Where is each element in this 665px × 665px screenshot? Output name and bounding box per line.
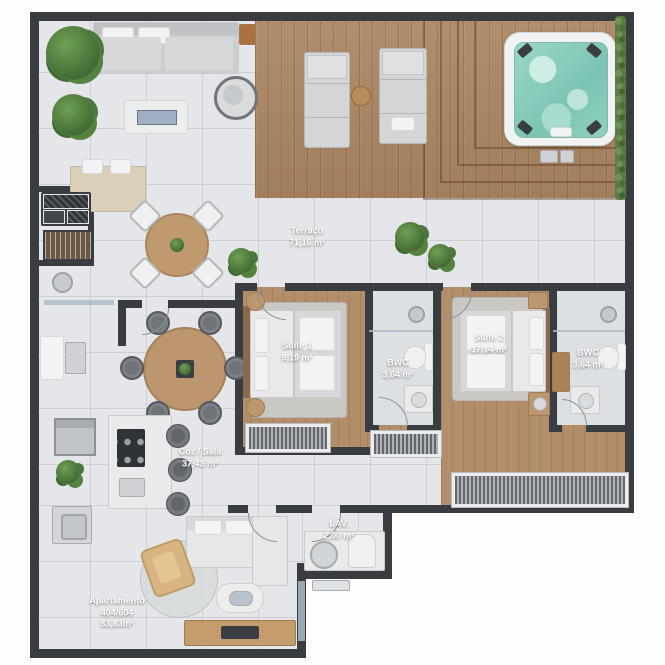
- bwc1-sink: [411, 392, 427, 408]
- label-lav-name: LAV.: [323, 518, 354, 530]
- label-suite1-area: 9,19 m²: [281, 352, 312, 364]
- label-bwc2: BWC 3,64 m²: [572, 347, 603, 370]
- label-coz-name: Coz / Sala: [179, 446, 222, 458]
- wall-lav-top: [340, 505, 391, 513]
- label-bwc1-area: 3,64 m²: [382, 369, 413, 381]
- corner-plant-small: [52, 94, 94, 136]
- label-terraco-area: 71,16 m²: [289, 237, 325, 249]
- ottoman-tray: [229, 591, 253, 606]
- coffee-table-tray: [137, 110, 177, 125]
- cabinet-drawer: [43, 210, 65, 224]
- wall-kitchen: [168, 300, 243, 308]
- suite1-headboard: [243, 306, 250, 398]
- label-apartamento: Apartamento 404/604 83,83m²: [89, 595, 145, 630]
- label-coz-area: 37,43 m²: [179, 458, 222, 470]
- console-item: [221, 626, 259, 639]
- wall-bwc2-bottom: [549, 425, 562, 432]
- label-suite2-area: 17,14 m²: [471, 344, 507, 356]
- nightstand-lamp: [533, 397, 547, 411]
- chair-cushion: [223, 85, 243, 105]
- wall-suite1-bwc1: [365, 283, 373, 429]
- suite2-nightstand: [528, 292, 548, 309]
- wall-bottom-left: [30, 649, 306, 658]
- bwc1-vanity: [404, 385, 433, 413]
- suite2-dresser: [552, 352, 570, 392]
- bwc2-shower-glass: [553, 330, 625, 332]
- washer-door: [61, 514, 87, 540]
- deck-floor-hatch: [560, 150, 574, 163]
- label-suite2-name: Suíte 2: [471, 332, 507, 344]
- deck-side-table: [351, 86, 371, 106]
- sofa-seat: [165, 37, 233, 70]
- wall-top: [30, 12, 634, 21]
- coffee-table: [124, 100, 188, 134]
- tv-console: [184, 620, 296, 646]
- sun-lounger: [304, 52, 350, 148]
- hall-closet: [371, 431, 441, 457]
- label-terraco-name: Terraço: [289, 225, 325, 237]
- lounger-towel: [391, 117, 415, 131]
- bar-stool: [166, 424, 190, 448]
- wall-bedrooms-top: [285, 283, 443, 291]
- wall-office-top: [228, 505, 248, 513]
- terrace-hedge: [615, 16, 626, 200]
- stove: [117, 429, 145, 467]
- wall-left: [30, 12, 39, 658]
- washer: [52, 506, 92, 544]
- wall-hall-suite2: [433, 283, 441, 433]
- jacuzzi-control: [550, 127, 572, 137]
- cabinet-drawer: [43, 194, 89, 209]
- wall-bwc2-bottom: [586, 425, 625, 432]
- terrace-sofa: [93, 22, 239, 74]
- bed-pillow: [529, 317, 544, 350]
- label-suite1-name: Suíte 1: [281, 340, 312, 352]
- label-bwc1-name: BWC: [382, 357, 413, 369]
- floor-plan: Terraço 71,16 m² Suíte 1 9,19 m² BWC 3,6…: [0, 0, 665, 665]
- terrace-sink: [52, 272, 73, 293]
- label-apartamento-area: 83,83m²: [89, 619, 145, 631]
- bed-pillow: [254, 356, 269, 391]
- corner-plant-large: [46, 26, 100, 80]
- terrace-potted-plant: [228, 248, 254, 274]
- cabinet-drawer: [67, 210, 89, 224]
- kitchen-counter: [108, 415, 172, 509]
- lounger-headrest: [307, 55, 347, 79]
- label-bwc1: BWC 3,64 m²: [382, 357, 413, 380]
- table-centerpiece: [170, 238, 184, 252]
- lav-sink: [310, 541, 338, 569]
- counter-stool: [82, 159, 103, 174]
- lounger-headrest: [382, 51, 424, 75]
- dining-chair: [120, 356, 144, 380]
- bwc2-sink: [578, 393, 594, 409]
- bbq-grill: [43, 230, 93, 261]
- office-glass-door: [298, 581, 305, 641]
- label-apartamento-unit: 404/604: [89, 607, 145, 619]
- label-apartamento-name: Apartamento: [89, 595, 145, 607]
- bed-pillow: [254, 318, 269, 353]
- wall-kitchen-stub: [118, 300, 126, 346]
- label-lav: LAV. 2,00 m²: [323, 518, 354, 541]
- sofa-pillow: [194, 520, 222, 535]
- label-coz-sala: Coz / Sala 37,43 m²: [179, 446, 222, 469]
- counter-stool: [110, 159, 131, 174]
- label-suite1: Suíte 1 9,19 m²: [281, 340, 312, 363]
- floor-plant: [56, 460, 80, 484]
- sun-lounger: [379, 48, 427, 144]
- terrace-potted-plant: [395, 222, 425, 252]
- deck-floor-hatch: [540, 150, 558, 163]
- label-bwc2-name: BWC: [572, 347, 603, 359]
- label-terraco: Terraço 71,16 m²: [289, 225, 325, 248]
- wall-lav-top: [306, 505, 312, 513]
- lav-doormat: [312, 580, 350, 591]
- wall-right: [625, 12, 634, 513]
- dining-chair: [198, 401, 222, 425]
- bwc1-shower-head: [408, 306, 425, 323]
- wall-office-top: [276, 505, 306, 513]
- bwc1-shower-glass: [369, 330, 433, 332]
- terrace-glass-door: [44, 300, 114, 305]
- dining-chair: [198, 311, 222, 335]
- armchair-seat: [152, 550, 182, 584]
- terrace-round-chair: [214, 76, 258, 120]
- jacuzzi: [504, 32, 616, 146]
- suite2-wardrobe: [452, 473, 628, 507]
- terrace-potted-plant: [428, 244, 452, 268]
- bwc2-shower-head: [600, 306, 617, 323]
- bbq-cabinet: [41, 192, 91, 226]
- wall-heater: [40, 336, 64, 380]
- bar-stool: [166, 492, 190, 516]
- label-lav-area: 2,00 m²: [323, 530, 354, 542]
- wall-lav-bottom: [297, 570, 392, 579]
- terrace-side-table: [239, 24, 256, 45]
- wall-cabinet: [65, 342, 86, 374]
- wall-niche: [54, 418, 96, 456]
- suite1-wardrobe: [246, 424, 330, 452]
- suite1-nightstand: [246, 398, 265, 417]
- label-bwc2-area: 3,64 m²: [572, 359, 603, 371]
- table-plant: [179, 363, 191, 375]
- blanket-fold: [466, 353, 506, 389]
- sofa-seat: [97, 37, 161, 70]
- bed-pillow: [529, 353, 544, 386]
- dining-table: [143, 327, 227, 411]
- suite2-nightstand: [528, 392, 550, 416]
- ottoman: [216, 583, 264, 613]
- kitchen-sink: [119, 478, 145, 497]
- label-suite2: Suíte 2 17,14 m²: [471, 332, 507, 355]
